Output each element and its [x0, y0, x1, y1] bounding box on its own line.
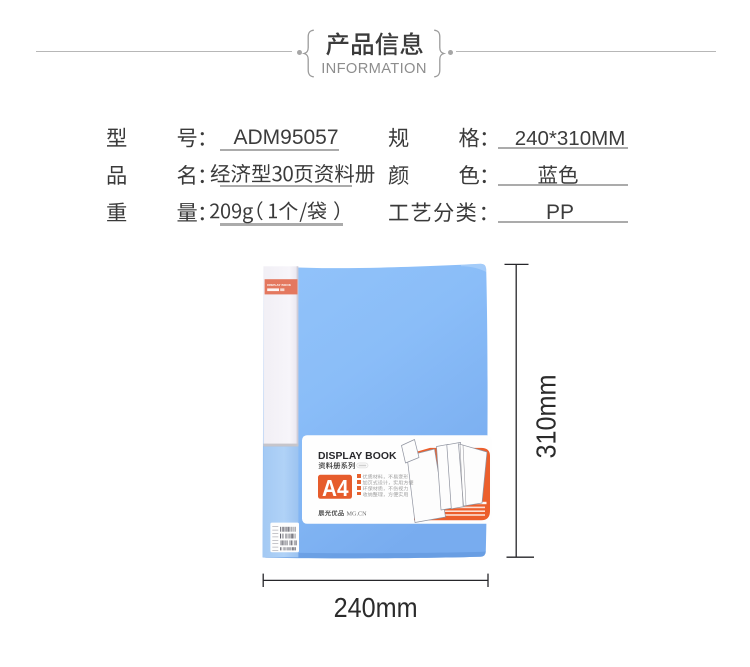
svg-text:310mm: 310mm: [531, 375, 562, 459]
svg-text:DISPLAY BOOK: DISPLAY BOOK: [318, 451, 397, 462]
svg-text:DISPLAY BOOK: DISPLAY BOOK: [267, 283, 292, 287]
svg-text:MG.CN: MG.CN: [347, 510, 368, 517]
svg-text:A4: A4: [322, 475, 349, 501]
svg-text:240mm: 240mm: [334, 592, 418, 623]
